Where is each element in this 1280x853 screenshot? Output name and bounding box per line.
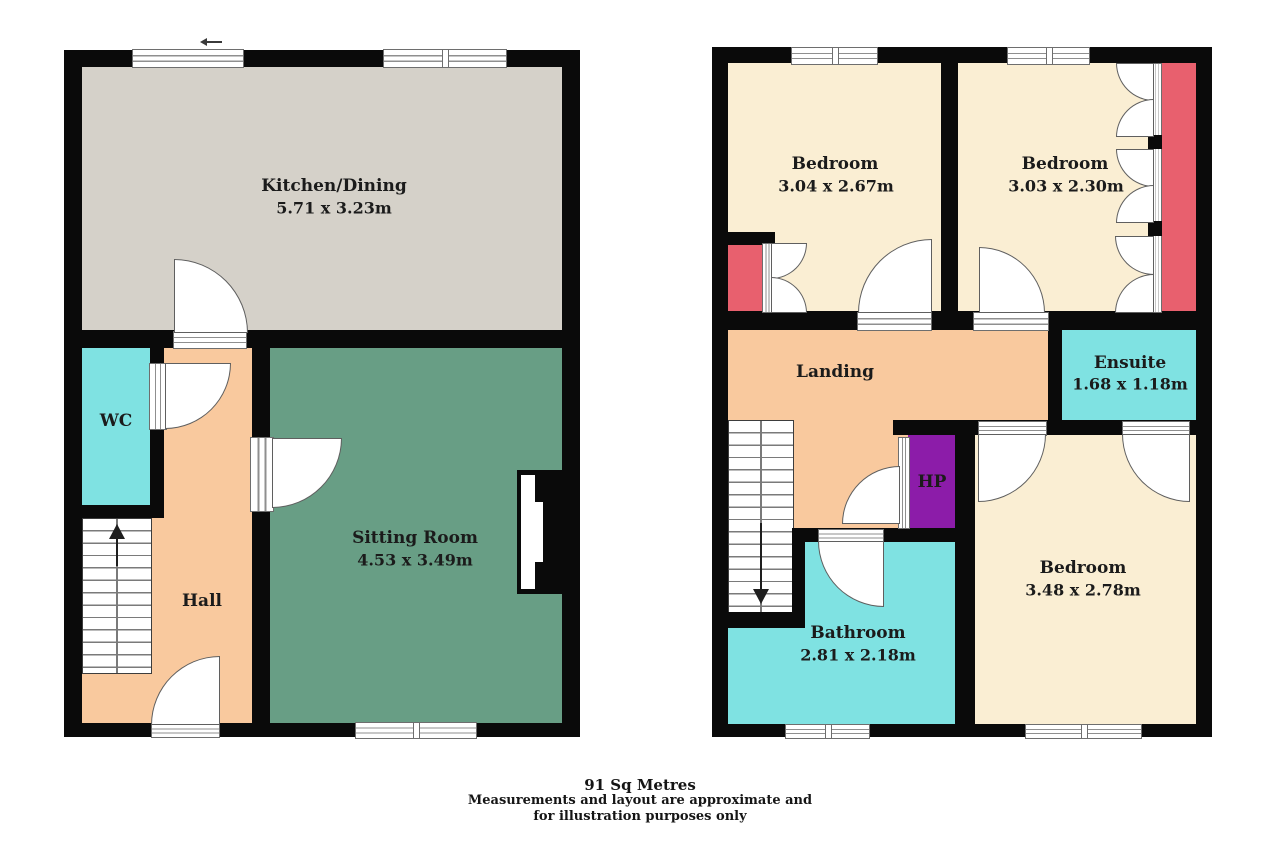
kitchen-dims: 5.71 x 3.23m	[276, 199, 392, 218]
landing-room	[728, 330, 1062, 420]
window-mullion	[825, 724, 832, 739]
window	[785, 724, 870, 739]
wc-label: WC	[100, 411, 133, 431]
disclaimer-text: Measurements and layout are approximate …	[0, 793, 1280, 808]
hot-press-label: HP	[918, 472, 947, 492]
landing-label: Landing	[796, 362, 874, 382]
window	[383, 49, 507, 68]
sitting-room-dims: 4.53 x 3.49m	[357, 551, 473, 570]
window	[1025, 724, 1142, 739]
ensuite-label: Ensuite	[1094, 353, 1166, 373]
wall	[1048, 311, 1062, 435]
wardrobe-post	[1148, 221, 1162, 236]
ensuite-dims: 1.68 x 1.18m	[1072, 375, 1188, 394]
window	[355, 722, 477, 739]
front-door-threshold	[151, 724, 220, 738]
window-mullion	[1081, 724, 1088, 739]
stairs-up-arrow-stem	[116, 538, 119, 566]
wall	[82, 330, 563, 348]
bedroom-back-label: Bedroom	[1040, 558, 1127, 578]
window-mullion	[413, 722, 420, 739]
stairs-up	[82, 518, 152, 674]
wall	[64, 723, 580, 737]
window	[1007, 47, 1090, 65]
disclaimer-text: for illustration purposes only	[0, 809, 1280, 824]
sitting-room-label: Sitting Room	[352, 528, 478, 548]
bathroom-label: Bathroom	[810, 623, 905, 643]
hall-label: Hall	[182, 591, 222, 611]
small-arrow-icon	[200, 38, 224, 46]
window	[791, 47, 878, 65]
bedroom-front-right-dims: 3.03 x 2.30m	[1008, 177, 1124, 196]
fireplace-surround	[521, 475, 535, 589]
wall	[252, 330, 270, 723]
wall	[955, 420, 975, 724]
floorplan-image: Kitchen/Dining 5.71 x 3.23m WC Hall Sitt…	[0, 0, 1280, 853]
wardrobe	[1160, 63, 1196, 311]
bathroom-room	[728, 628, 805, 724]
kitchen-label: Kitchen/Dining	[261, 176, 406, 196]
window-mullion	[832, 47, 839, 65]
ground-floor-plan: Kitchen/Dining 5.71 x 3.23m WC Hall Sitt…	[64, 47, 580, 737]
window-mullion	[442, 49, 449, 68]
wall	[82, 505, 164, 518]
bedroom-front-left-dims: 3.04 x 2.67m	[778, 177, 894, 196]
bedroom-front-right-label: Bedroom	[1022, 154, 1109, 174]
wall	[712, 47, 728, 737]
bedroom-front-left-label: Bedroom	[792, 154, 879, 174]
window	[132, 49, 244, 68]
wall	[1196, 47, 1212, 737]
wall	[712, 612, 805, 628]
wall	[562, 50, 580, 737]
stairs-down-arrow-icon	[753, 589, 769, 604]
door-threshold	[173, 331, 247, 349]
stairs-up-arrow-icon	[109, 524, 125, 539]
wall	[728, 311, 1196, 330]
door-threshold	[250, 437, 274, 512]
wall	[64, 50, 82, 737]
door-threshold	[973, 312, 1049, 331]
wall	[941, 63, 958, 311]
fireplace-hearth	[535, 502, 543, 562]
stairs-down	[728, 420, 794, 614]
stairs-down-arrow-stem	[760, 523, 763, 589]
first-floor-plan: Bedroom 3.04 x 2.67m Bedroom 3.03 x 2.30…	[712, 47, 1212, 737]
total-area-text: 91 Sq Metres	[0, 776, 1280, 794]
bathroom-dims: 2.81 x 2.18m	[800, 646, 916, 665]
bedroom-back-dims: 3.48 x 2.78m	[1025, 581, 1141, 600]
door-threshold	[857, 312, 932, 331]
wall	[712, 47, 1212, 63]
wardrobe-post	[1148, 135, 1162, 149]
window-mullion	[1046, 47, 1053, 65]
wardrobe	[728, 243, 762, 311]
